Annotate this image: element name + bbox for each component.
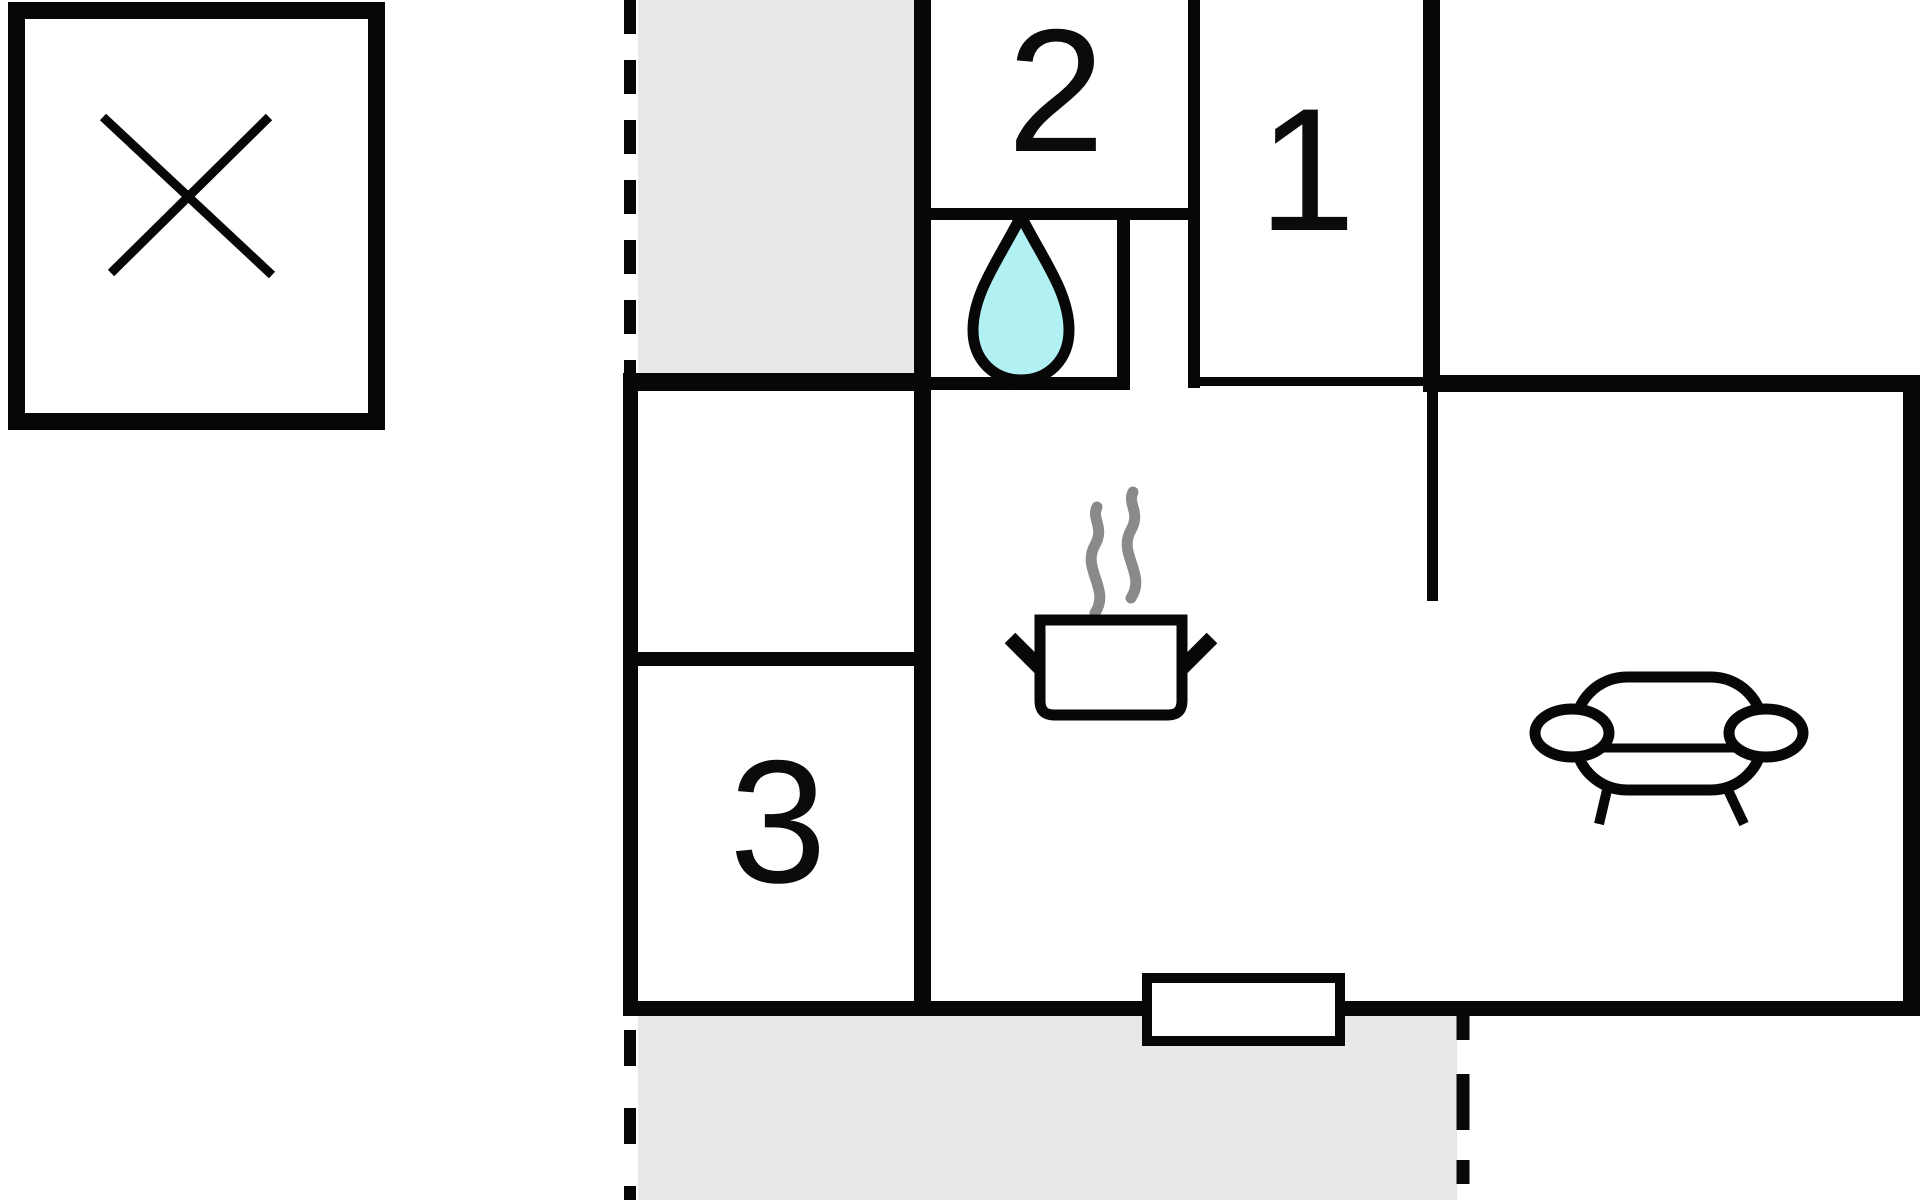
floor-plan-canvas: 2 1 3 [0, 0, 1920, 1200]
wall-room1-bottom [1200, 377, 1423, 386]
room-3-label: 3 [729, 725, 826, 920]
wall-room3-divider [638, 652, 914, 666]
annex-box [8, 2, 385, 430]
wall-room1-right [1423, 0, 1440, 392]
annex-box-inner [25, 19, 368, 413]
sofa-leg-right [1728, 790, 1744, 824]
terrace-top [638, 0, 914, 373]
wall-room1-left [1188, 0, 1200, 388]
sofa-leg-left [1599, 790, 1607, 824]
wall-room2-bottom [931, 208, 1200, 220]
sofa-armrest-right [1729, 709, 1803, 757]
room-1-label: 1 [1258, 73, 1355, 268]
wall-living-right [1903, 375, 1920, 1016]
water-drop-icon [973, 216, 1069, 380]
wall-left-exterior [623, 373, 638, 1016]
floor-plan: 2 1 3 [0, 0, 1920, 1200]
room-2-label: 2 [1007, 0, 1104, 189]
wall-living-partial [1427, 392, 1438, 601]
sofa-icon [1535, 677, 1803, 824]
sofa-armrest-left [1535, 709, 1609, 757]
wall-main-vertical [914, 0, 931, 1016]
wall-bathroom-right [1117, 208, 1130, 380]
steaming-pot-icon [1010, 492, 1212, 717]
pot-body [1040, 620, 1182, 715]
wall-terrace-top-bottom [623, 373, 931, 391]
steam-icon [1091, 492, 1136, 613]
door-step [1147, 978, 1340, 1041]
wall-hall-top-right [1423, 375, 1920, 392]
